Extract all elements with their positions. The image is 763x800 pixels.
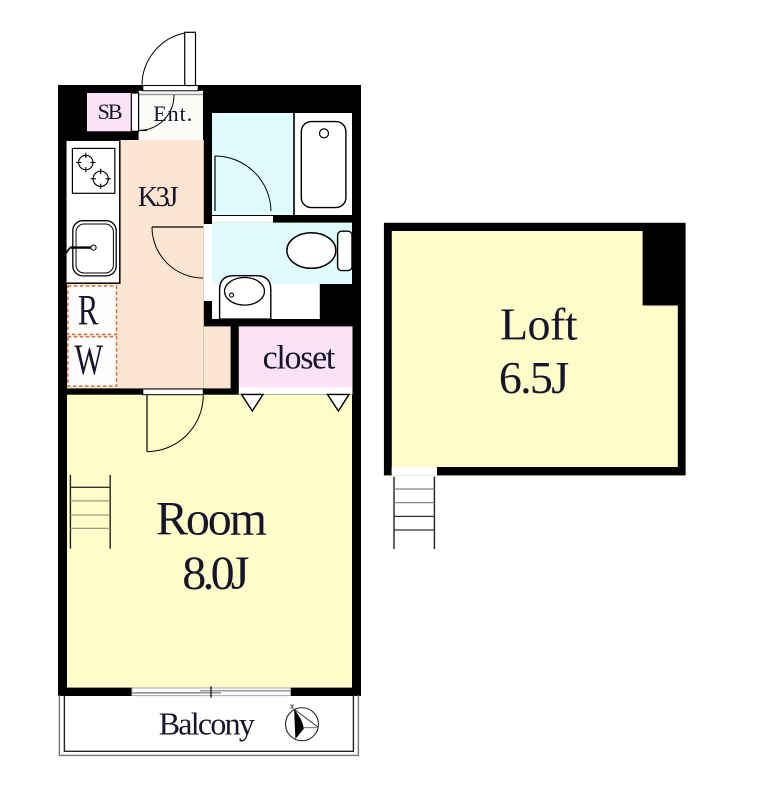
svg-text:SB: SB — [98, 99, 123, 124]
svg-text:Ent.: Ent. — [153, 101, 192, 126]
svg-text:R: R — [78, 287, 99, 334]
svg-text:6.5J: 6.5J — [499, 352, 569, 403]
svg-text:W: W — [75, 337, 104, 384]
svg-text:8.0J: 8.0J — [182, 547, 249, 600]
svg-text:Room: Room — [156, 492, 267, 545]
svg-text:closet: closet — [263, 340, 336, 377]
svg-text:Balcony: Balcony — [159, 705, 255, 741]
svg-text:K3J: K3J — [138, 182, 179, 213]
svg-text:Loft: Loft — [500, 299, 578, 350]
